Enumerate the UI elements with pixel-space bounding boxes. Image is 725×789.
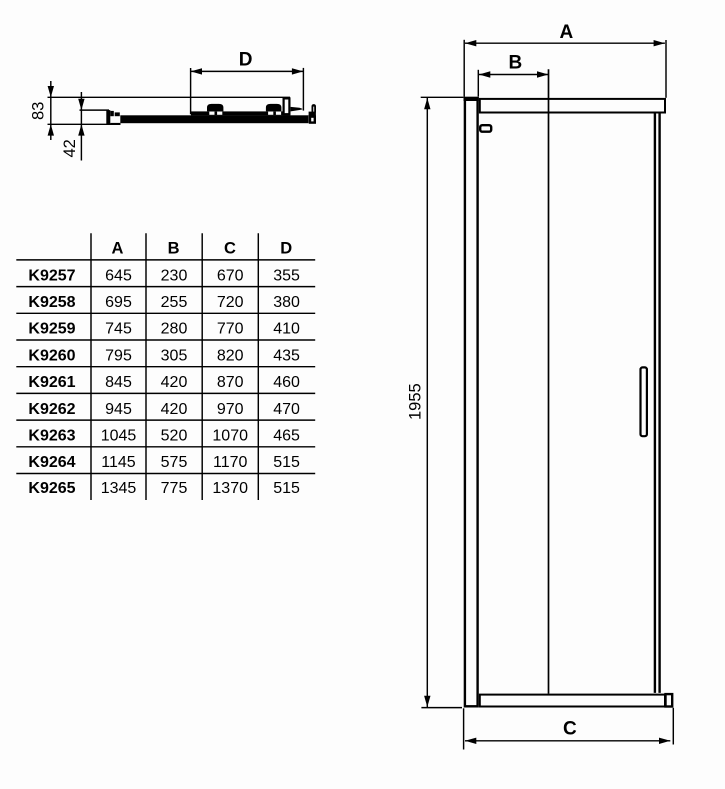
svg-text:1070: 1070: [212, 428, 248, 445]
svg-text:280: 280: [161, 321, 188, 338]
svg-text:230: 230: [161, 267, 188, 284]
svg-text:515: 515: [273, 480, 300, 497]
svg-text:D: D: [280, 240, 292, 258]
svg-text:1170: 1170: [213, 454, 248, 471]
svg-text:K9260: K9260: [28, 347, 75, 364]
svg-text:K9259: K9259: [28, 321, 75, 338]
svg-text:B: B: [168, 240, 180, 258]
svg-text:1370: 1370: [212, 480, 248, 497]
svg-text:1145: 1145: [101, 454, 136, 471]
svg-text:305: 305: [161, 347, 188, 364]
svg-text:945: 945: [105, 401, 132, 418]
svg-text:795: 795: [105, 347, 132, 364]
svg-text:A: A: [560, 22, 574, 43]
svg-text:255: 255: [161, 294, 188, 311]
svg-text:410: 410: [273, 321, 300, 338]
svg-text:42: 42: [61, 139, 79, 157]
svg-text:645: 645: [105, 267, 132, 284]
svg-text:1345: 1345: [101, 480, 137, 497]
svg-text:845: 845: [105, 374, 132, 391]
svg-text:K9257: K9257: [28, 267, 75, 284]
svg-text:520: 520: [161, 428, 188, 445]
svg-text:1955: 1955: [407, 383, 425, 420]
svg-text:83: 83: [30, 102, 48, 120]
svg-text:380: 380: [273, 294, 300, 311]
svg-text:695: 695: [105, 294, 132, 311]
svg-text:K9263: K9263: [28, 428, 75, 445]
svg-text:515: 515: [273, 454, 300, 471]
svg-text:K9262: K9262: [28, 401, 75, 418]
svg-text:775: 775: [161, 480, 188, 497]
svg-text:K9261: K9261: [28, 374, 75, 391]
svg-text:D: D: [239, 50, 253, 71]
svg-text:745: 745: [105, 321, 132, 338]
svg-text:1045: 1045: [101, 428, 137, 445]
svg-text:970: 970: [217, 401, 244, 418]
svg-text:460: 460: [273, 374, 300, 391]
svg-text:820: 820: [217, 347, 244, 364]
svg-text:C: C: [224, 240, 236, 258]
svg-text:A: A: [111, 240, 123, 258]
svg-text:B: B: [509, 52, 523, 73]
svg-text:K9265: K9265: [28, 480, 75, 497]
svg-text:720: 720: [217, 294, 244, 311]
svg-text:420: 420: [161, 374, 188, 391]
svg-text:355: 355: [273, 267, 300, 284]
svg-text:C: C: [563, 719, 577, 740]
svg-text:465: 465: [273, 428, 300, 445]
svg-text:470: 470: [273, 401, 300, 418]
svg-text:770: 770: [217, 321, 244, 338]
svg-text:670: 670: [217, 267, 244, 284]
svg-text:K9258: K9258: [28, 294, 75, 311]
svg-text:K9264: K9264: [28, 454, 75, 471]
svg-text:435: 435: [273, 347, 300, 364]
svg-text:420: 420: [161, 401, 188, 418]
svg-text:575: 575: [161, 454, 188, 471]
svg-text:870: 870: [217, 374, 244, 391]
